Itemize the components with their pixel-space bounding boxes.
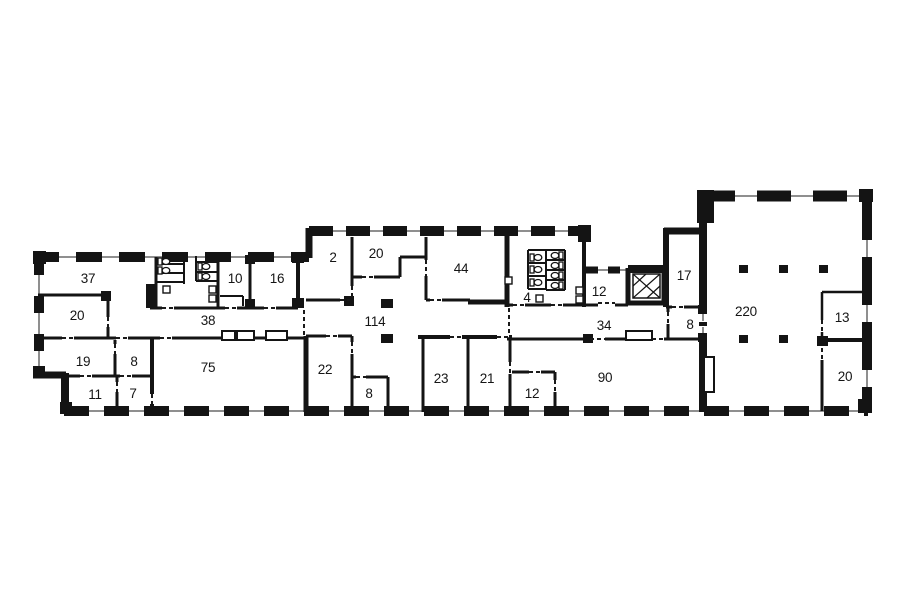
room-label: 10 (228, 271, 243, 286)
toilet-icon (551, 272, 563, 279)
toilet-icon (551, 252, 563, 259)
room-label: 12 (592, 284, 607, 299)
toilet-icon (530, 254, 542, 261)
toilet-icon (551, 282, 563, 289)
room-label: 23 (434, 371, 449, 386)
room-label: 37 (81, 271, 96, 286)
room-label: 8 (686, 317, 693, 332)
room-label: 11 (88, 387, 102, 402)
room-label: 13 (835, 310, 850, 325)
sink-icon (536, 295, 543, 302)
floor-plan: 3720198117381016752204411422823211241234… (0, 0, 900, 604)
room-label: 12 (525, 386, 540, 401)
room-label: 8 (365, 386, 372, 401)
sink-icon (576, 287, 583, 294)
room-label: 20 (70, 308, 85, 323)
column-marker (739, 265, 748, 273)
wall-niche (237, 331, 254, 340)
room-label: 220 (735, 304, 757, 319)
elevator-icon (633, 274, 660, 298)
column-marker (779, 265, 788, 273)
sink-icon (163, 286, 170, 293)
sink-icon (209, 286, 216, 293)
structural-walls (33, 193, 866, 412)
floor-plan-page: 3720198117381016752204411422823211241234… (0, 0, 900, 604)
room-label: 20 (838, 369, 853, 384)
room-label: 7 (129, 386, 136, 401)
room-label: 22 (318, 362, 333, 377)
room-label: 44 (454, 261, 469, 276)
column-marker (779, 335, 788, 343)
toilet-icon (198, 273, 210, 280)
room-label: 90 (598, 370, 613, 385)
wall-niche (266, 331, 287, 340)
room-label: 4 (523, 290, 531, 305)
column-marker (819, 265, 828, 273)
room-label: 20 (369, 246, 384, 261)
column-marker (739, 335, 748, 343)
toilet-icon (551, 262, 563, 269)
room-label: 21 (480, 371, 495, 386)
room-label: 17 (677, 268, 692, 283)
room-label: 34 (597, 318, 612, 333)
sink-icon (209, 295, 216, 302)
room-label: 19 (76, 354, 91, 369)
wall-niche (222, 331, 235, 340)
room-label: 38 (201, 313, 216, 328)
wall-niche (626, 331, 652, 340)
toilet-icon (530, 279, 542, 286)
toilet-icon (158, 267, 170, 274)
toilet-icon (530, 266, 542, 273)
column-marker (381, 334, 393, 343)
room-label: 16 (270, 271, 285, 286)
room-label: 114 (365, 314, 387, 329)
room-label: 75 (201, 360, 216, 375)
duct-shaft (704, 357, 714, 392)
room-label: 2 (329, 250, 336, 265)
room-labels: 3720198117381016752204411422823211241234… (70, 246, 853, 402)
room-label: 8 (130, 354, 137, 369)
toilet-icon (158, 258, 170, 265)
toilet-icon (198, 263, 210, 270)
column-marker (381, 299, 393, 308)
sink-icon (505, 277, 512, 284)
sink-icon (576, 296, 583, 303)
